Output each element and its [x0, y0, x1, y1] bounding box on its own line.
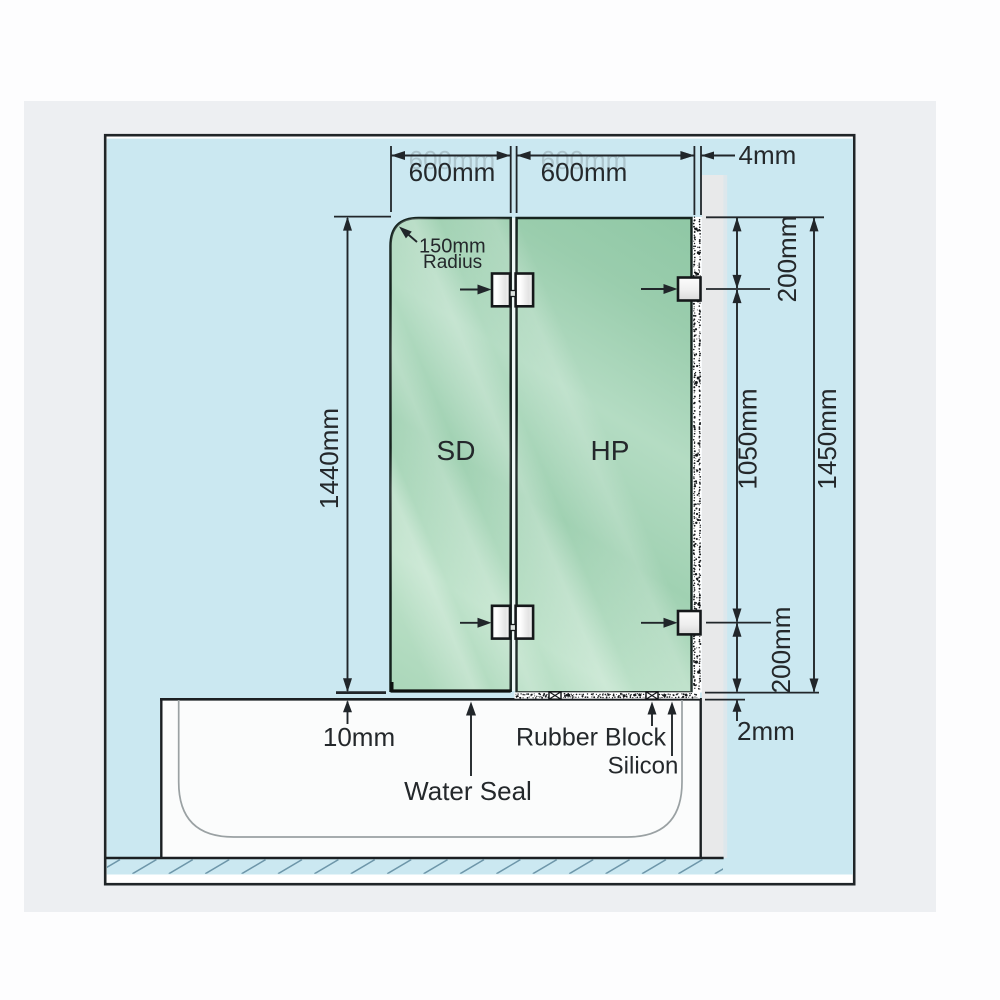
svg-text:4mm: 4mm	[739, 140, 797, 170]
svg-text:2mm: 2mm	[737, 716, 795, 746]
svg-text:1450mm: 1450mm	[812, 388, 842, 489]
svg-text:Water Seal: Water Seal	[404, 776, 532, 806]
svg-text:SD: SD	[437, 435, 476, 466]
svg-text:10mm: 10mm	[323, 722, 395, 752]
svg-text:Radius: Radius	[423, 252, 482, 273]
svg-text:HP: HP	[591, 435, 630, 466]
svg-text:600mm: 600mm	[409, 157, 496, 187]
svg-text:200mm: 200mm	[772, 216, 802, 303]
svg-text:600mm: 600mm	[541, 157, 628, 187]
svg-text:1440mm: 1440mm	[314, 408, 344, 509]
svg-text:Silicon: Silicon	[608, 753, 679, 780]
svg-text:1050mm: 1050mm	[733, 388, 763, 489]
svg-text:Rubber Block: Rubber Block	[516, 724, 667, 752]
svg-text:200mm: 200mm	[766, 607, 796, 694]
